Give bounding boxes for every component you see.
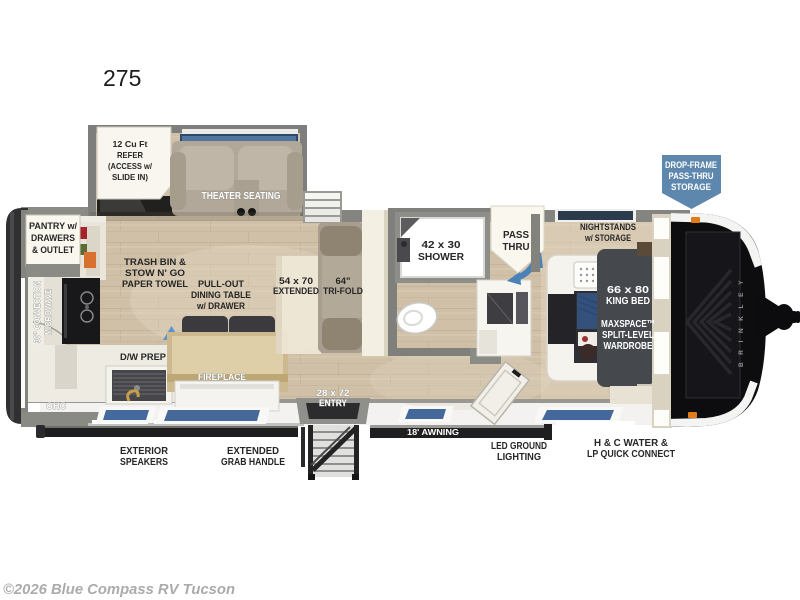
svg-text:©2026 Blue Compass RV Tucson: ©2026 Blue Compass RV Tucson [3, 582, 235, 598]
svg-text:STOW N' GO: STOW N' GO [125, 268, 185, 279]
svg-text:PULL-OUT: PULL-OUT [198, 279, 244, 290]
svg-text:EXTERIOR: EXTERIOR [120, 446, 169, 457]
svg-text:18' AWNING: 18' AWNING [407, 427, 459, 437]
svg-text:SLIDE IN): SLIDE IN) [112, 172, 148, 182]
svg-text:STORAGE: STORAGE [671, 182, 711, 193]
svg-text:12 Cu Ft: 12 Cu Ft [113, 139, 148, 149]
svg-text:66 x 80: 66 x 80 [607, 285, 650, 296]
svg-text:D/W PREP: D/W PREP [120, 352, 167, 363]
svg-text:TRI-FOLD: TRI-FOLD [323, 286, 363, 297]
svg-text:w/ STORAGE: w/ STORAGE [584, 233, 631, 244]
svg-text:LIGHTING: LIGHTING [497, 452, 541, 463]
svg-text:H & C WATER &: H & C WATER & [594, 438, 668, 449]
svg-text:SPLIT-LEVEL: SPLIT-LEVEL [602, 330, 654, 341]
svg-text:EXTENDED: EXTENDED [227, 446, 279, 457]
svg-text:PANTRY w/: PANTRY w/ [29, 221, 77, 231]
svg-text:& OUTLET: & OUTLET [32, 245, 74, 255]
svg-text:w/ DRAWER: w/ DRAWER [196, 301, 245, 312]
svg-text:DRAWERS: DRAWERS [31, 233, 75, 243]
svg-text:ENTRY: ENTRY [319, 398, 348, 409]
svg-text:FIREPLACE: FIREPLACE [198, 372, 246, 383]
svg-text:MAXSPACE™: MAXSPACE™ [601, 319, 655, 330]
svg-text:PAPER TOWEL: PAPER TOWEL [122, 279, 188, 290]
svg-text:DROP-FRAME: DROP-FRAME [665, 160, 717, 171]
svg-text:SHOWER: SHOWER [418, 252, 465, 263]
svg-text:WARDROBE: WARDROBE [604, 341, 653, 352]
svg-text:EXTENDED: EXTENDED [273, 286, 319, 297]
svg-text:42 x 30: 42 x 30 [422, 240, 461, 251]
svg-text:LP QUICK CONNECT: LP QUICK CONNECT [587, 449, 675, 460]
svg-text:LED GROUND: LED GROUND [491, 441, 547, 452]
svg-text:DINING TABLE: DINING TABLE [191, 290, 251, 301]
svg-text:GRAB HANDLE: GRAB HANDLE [221, 457, 285, 468]
svg-text:PASS-THRU: PASS-THRU [669, 171, 714, 182]
svg-text:SPEAKERS: SPEAKERS [120, 457, 168, 468]
svg-text:275: 275 [103, 65, 141, 91]
svg-text:THEATER SEATING: THEATER SEATING [202, 191, 281, 202]
svg-text:TRASH BIN &: TRASH BIN & [124, 257, 186, 268]
svg-text:NIGHTSTANDS: NIGHTSTANDS [580, 222, 636, 233]
svg-text:30" CONVECTION: 30" CONVECTION [32, 281, 42, 343]
svg-text:OHC: OHC [46, 401, 66, 412]
svg-text:(ACCESS w/: (ACCESS w/ [108, 161, 153, 171]
svg-text:BRINKLEY: BRINKLEY [738, 273, 745, 367]
svg-text:THRU: THRU [503, 242, 530, 253]
svg-text:KING BED: KING BED [606, 296, 650, 307]
svg-text:PASS: PASS [503, 230, 529, 241]
svg-text:MICROWAVE: MICROWAVE [43, 289, 53, 335]
svg-text:REFER: REFER [117, 150, 143, 160]
